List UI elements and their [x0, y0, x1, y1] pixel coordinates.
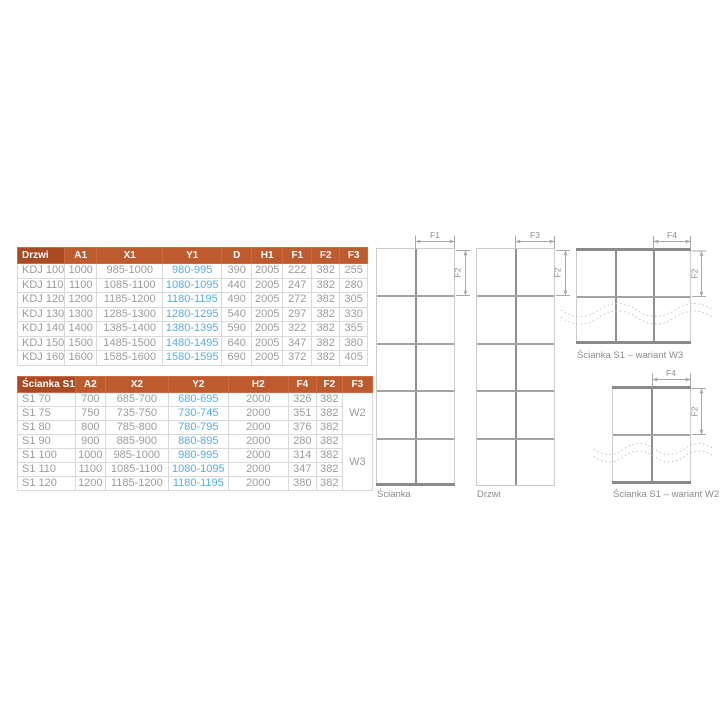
table-cell: 405 — [340, 351, 368, 366]
table-cell: 382 — [312, 278, 340, 293]
column-header-y2: Y2 — [168, 377, 228, 393]
table-cell: 900 — [75, 435, 105, 449]
table-cell: 380 — [340, 336, 368, 351]
scianka-diagram — [376, 248, 455, 486]
table-row: S1 70700685-700680-6952000326382W2 — [18, 393, 373, 407]
wariant-w3-diagram — [576, 248, 691, 344]
table-cell: 314 — [288, 449, 316, 463]
table-cell: 750 — [75, 407, 105, 421]
column-header-f1: F1 — [283, 248, 312, 264]
glass-divider — [415, 249, 417, 485]
wariant-w2-caption: Ścianka S1 – wariant W2 — [613, 489, 719, 500]
table-cell: 351 — [288, 407, 316, 421]
table-row: S1 12012001185-12001180-11952000380382 — [18, 477, 373, 491]
table-cell: 382 — [316, 435, 342, 449]
wariant-w3-caption: Ścianka S1 – wariant W3 — [577, 350, 683, 361]
table-cell: 255 — [340, 264, 368, 279]
column-header-f2: F2 — [312, 248, 340, 264]
f2-dim-label-w2: F2 — [689, 400, 700, 422]
table-cell: 305 — [340, 293, 368, 308]
table-row: S1 80800785-800780-7952000376382 — [18, 421, 373, 435]
table-cell: 2000 — [228, 407, 288, 421]
variant-group-cell-w3: W3 — [342, 435, 372, 491]
table-cell: 372 — [283, 351, 312, 366]
table-cell: 347 — [283, 336, 312, 351]
table-cell: 885-900 — [105, 435, 168, 449]
column-header-x2: X2 — [105, 377, 168, 393]
table-cell: KDJ 120 — [18, 293, 65, 308]
table-cell: 2000 — [228, 449, 288, 463]
table-cell: 2000 — [228, 435, 288, 449]
variant-group-cell-w2: W2 — [342, 393, 372, 435]
header-row: DrzwiA1X1Y1DH1F1F2F3 — [18, 248, 368, 264]
column-header-f2: F2 — [316, 377, 342, 393]
table-cell: 980-995 — [168, 449, 228, 463]
column-header-d: D — [222, 248, 252, 264]
table-cell: S1 75 — [18, 407, 76, 421]
table-cell: 1480-1495 — [163, 336, 222, 351]
table-cell: 382 — [312, 293, 340, 308]
table-cell: KDJ 150 — [18, 336, 65, 351]
glass-divider — [377, 295, 454, 297]
table-cell: 730-745 — [168, 407, 228, 421]
table-cell: 440 — [222, 278, 252, 293]
scianka-table: Ścianka S1A2X2Y2H2F4F2F3S1 70700685-7006… — [17, 376, 373, 491]
drzwi-table-section: DrzwiA1X1Y1DH1F1F2F3KDJ 1001000985-10009… — [17, 247, 368, 366]
table-cell: 985-1000 — [105, 449, 168, 463]
wall-profile-bar — [576, 248, 691, 251]
drzwi-diagram — [476, 248, 555, 486]
column-header-f3: F3 — [340, 248, 368, 264]
table-cell: 1180-1195 — [168, 477, 228, 491]
drzwi-diagram-caption: Drzwi — [477, 489, 501, 500]
table-cell: 382 — [316, 393, 342, 407]
table-cell: 222 — [283, 264, 312, 279]
table-cell: 1400 — [65, 322, 97, 337]
glass-divider — [613, 434, 690, 436]
table-cell: KDJ 130 — [18, 307, 65, 322]
table-cell: S1 110 — [18, 463, 76, 477]
table-cell: 985-1000 — [97, 264, 163, 279]
table-cell: 382 — [312, 336, 340, 351]
table-cell: 355 — [340, 322, 368, 337]
spec-sheet-page: DrzwiA1X1Y1DH1F1F2F3KDJ 1001000985-10009… — [0, 0, 720, 720]
table-cell: 2000 — [228, 421, 288, 435]
table-cell: 2005 — [252, 307, 283, 322]
table-cell: 2005 — [252, 351, 283, 366]
table-cell: 700 — [75, 393, 105, 407]
wall-profile-bar — [376, 483, 455, 486]
table-cell: 247 — [283, 278, 312, 293]
column-header-y1: Y1 — [163, 248, 222, 264]
table-cell: 382 — [316, 421, 342, 435]
table-cell: 1180-1195 — [163, 293, 222, 308]
table-cell: KDJ 140 — [18, 322, 65, 337]
column-header-h1: H1 — [252, 248, 283, 264]
table-cell: 540 — [222, 307, 252, 322]
table-row: KDJ 14014001385-14001380-139559020053223… — [18, 322, 368, 337]
column-header-a1: A1 — [65, 248, 97, 264]
table-cell: S1 100 — [18, 449, 76, 463]
table-cell: 380 — [288, 477, 316, 491]
column-header-ścianka-s1: Ścianka S1 — [18, 377, 76, 393]
wall-profile-bar — [612, 481, 691, 484]
table-cell: 1185-1200 — [105, 477, 168, 491]
wall-profile-bar — [576, 341, 691, 344]
table-cell: S1 90 — [18, 435, 76, 449]
glass-divider — [477, 390, 554, 392]
table-cell: 780-795 — [168, 421, 228, 435]
table-cell: 785-800 — [105, 421, 168, 435]
table-cell: 490 — [222, 293, 252, 308]
glass-divider — [377, 390, 454, 392]
column-header-drzwi: Drzwi — [18, 248, 65, 264]
table-cell: S1 120 — [18, 477, 76, 491]
glass-divider — [377, 438, 454, 440]
column-header-x1: X1 — [97, 248, 163, 264]
table-row: KDJ 12012001185-12001180-119549020052723… — [18, 293, 368, 308]
table-cell: 1580-1595 — [163, 351, 222, 366]
table-cell: 330 — [340, 307, 368, 322]
table-cell: 1485-1500 — [97, 336, 163, 351]
table-cell: 2005 — [252, 264, 283, 279]
table-cell: 1085-1100 — [97, 278, 163, 293]
table-cell: 1585-1600 — [97, 351, 163, 366]
table-cell: 297 — [283, 307, 312, 322]
table-cell: 1285-1300 — [97, 307, 163, 322]
table-cell: 1080-1095 — [168, 463, 228, 477]
table-cell: 1080-1095 — [163, 278, 222, 293]
table-cell: 690 — [222, 351, 252, 366]
table-cell: 1000 — [75, 449, 105, 463]
table-cell: 382 — [312, 307, 340, 322]
table-cell: 880-895 — [168, 435, 228, 449]
table-cell: 1600 — [65, 351, 97, 366]
column-header-h2: H2 — [228, 377, 288, 393]
table-row: KDJ 13013001285-13001280-129554020052973… — [18, 307, 368, 322]
table-cell: S1 70 — [18, 393, 76, 407]
table-cell: 382 — [316, 463, 342, 477]
table-cell: 2005 — [252, 278, 283, 293]
glass-divider — [477, 295, 554, 297]
table-cell: 382 — [312, 322, 340, 337]
wariant-w2-diagram — [612, 386, 691, 484]
glass-divider — [477, 343, 554, 345]
table-cell: 2005 — [252, 336, 283, 351]
table-row: S1 1001000985-1000980-9952000314382 — [18, 449, 373, 463]
table-cell: 685-700 — [105, 393, 168, 407]
f4-dim-label-w3: F4 — [660, 230, 684, 240]
table-cell: 2005 — [252, 293, 283, 308]
table-cell: 640 — [222, 336, 252, 351]
table-cell: 390 — [222, 264, 252, 279]
table-cell: 1200 — [75, 477, 105, 491]
table-cell: 382 — [312, 264, 340, 279]
table-cell: 2005 — [252, 322, 283, 337]
drzwi-table: DrzwiA1X1Y1DH1F1F2F3KDJ 1001000985-10009… — [17, 247, 368, 366]
scianka-diagram-caption: Ścianka — [377, 489, 411, 500]
column-header-f3: F3 — [342, 377, 372, 393]
table-cell: 382 — [312, 351, 340, 366]
table-cell: 376 — [288, 421, 316, 435]
glass-divider — [477, 438, 554, 440]
table-row: KDJ 1001000985-1000980-99539020052223822… — [18, 264, 368, 279]
f1-dim-label: F1 — [423, 230, 447, 240]
table-cell: 280 — [340, 278, 368, 293]
table-cell: 326 — [288, 393, 316, 407]
table-cell: KDJ 100 — [18, 264, 65, 279]
table-cell: 272 — [283, 293, 312, 308]
table-row: KDJ 15015001485-15001480-149564020053473… — [18, 336, 368, 351]
f3-dim-label: F3 — [523, 230, 547, 240]
table-cell: KDJ 110 — [18, 278, 65, 293]
f2-dim-label-scianka: F2 — [453, 262, 464, 284]
column-header-f4: F4 — [288, 377, 316, 393]
table-cell: 382 — [316, 407, 342, 421]
glass-divider — [577, 296, 690, 298]
glass-divider — [377, 343, 454, 345]
table-cell: 2000 — [228, 463, 288, 477]
table-cell: 382 — [316, 449, 342, 463]
table-cell: 2000 — [228, 477, 288, 491]
table-cell: KDJ 160 — [18, 351, 65, 366]
table-row: S1 90900885-900880-8952000280382W3 — [18, 435, 373, 449]
table-cell: 1280-1295 — [163, 307, 222, 322]
f4-dim-label-w2: F4 — [659, 368, 683, 378]
table-cell: 590 — [222, 322, 252, 337]
table-cell: 680-695 — [168, 393, 228, 407]
table-cell: 2000 — [228, 393, 288, 407]
table-cell: 735-750 — [105, 407, 168, 421]
table-cell: 1385-1400 — [97, 322, 163, 337]
table-cell: 382 — [316, 477, 342, 491]
header-row: Ścianka S1A2X2Y2H2F4F2F3 — [18, 377, 373, 393]
table-cell: 1380-1395 — [163, 322, 222, 337]
table-row: KDJ 16016001585-16001580-159569020053723… — [18, 351, 368, 366]
table-cell: 1085-1100 — [105, 463, 168, 477]
table-row: S1 11011001085-11001080-10952000347382 — [18, 463, 373, 477]
table-cell: 280 — [288, 435, 316, 449]
scianka-table-section: Ścianka S1A2X2Y2H2F4F2F3S1 70700685-7006… — [17, 376, 373, 491]
glass-divider — [515, 249, 517, 485]
column-header-a2: A2 — [75, 377, 105, 393]
f2-dim-label-drzwi: F2 — [553, 262, 564, 284]
table-cell: 1000 — [65, 264, 97, 279]
table-cell: S1 80 — [18, 421, 76, 435]
table-cell: 1300 — [65, 307, 97, 322]
table-cell: 800 — [75, 421, 105, 435]
table-cell: 1100 — [65, 278, 97, 293]
table-cell: 1185-1200 — [97, 293, 163, 308]
table-cell: 980-995 — [163, 264, 222, 279]
table-cell: 1500 — [65, 336, 97, 351]
table-cell: 322 — [283, 322, 312, 337]
table-row: S1 75750735-750730-7452000351382 — [18, 407, 373, 421]
table-cell: 1100 — [75, 463, 105, 477]
table-cell: 347 — [288, 463, 316, 477]
table-row: KDJ 11011001085-11001080-109544020052473… — [18, 278, 368, 293]
f2-dim-label-w3: F2 — [690, 262, 701, 284]
table-cell: 1200 — [65, 293, 97, 308]
